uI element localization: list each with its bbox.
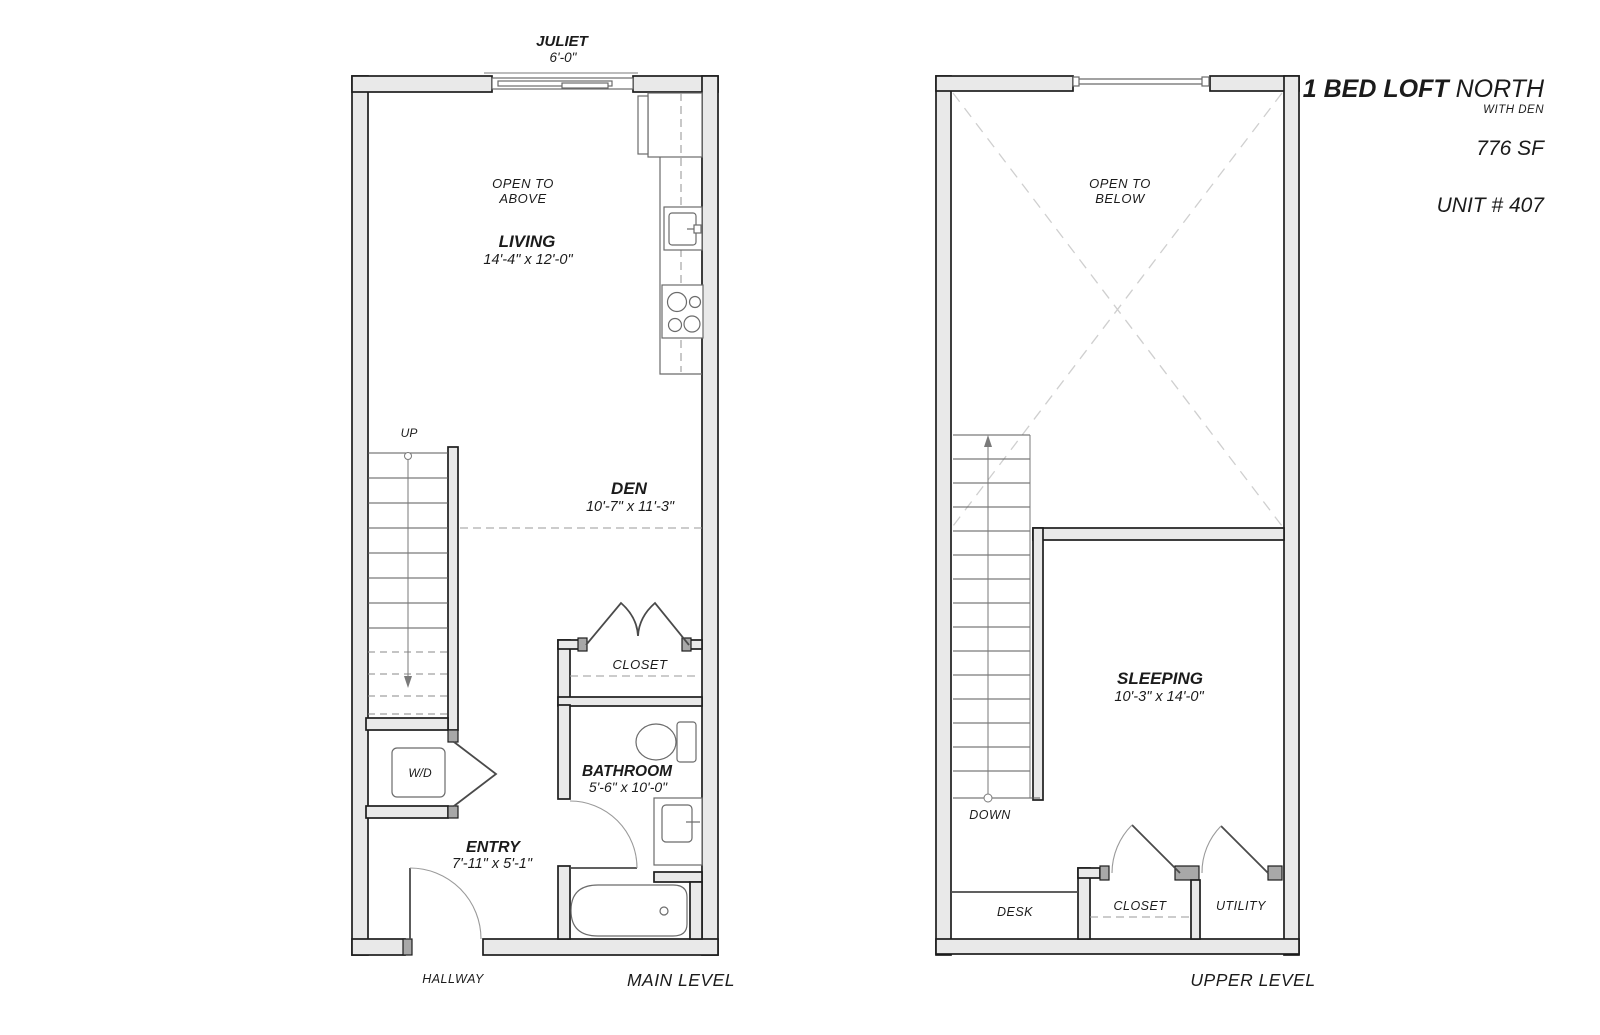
- utility-label: UTILITY: [1216, 899, 1267, 913]
- closet-wall: [1191, 880, 1200, 939]
- bathroom: [570, 722, 702, 936]
- wd-double-doors: [454, 742, 496, 806]
- bathroom-wall: [558, 866, 570, 939]
- kitchen-sink: [664, 207, 702, 250]
- door-jamb-cap: [448, 730, 458, 742]
- down-label: DOWN: [969, 808, 1011, 822]
- closet-wall: [690, 640, 702, 649]
- wall-segment: [936, 939, 1299, 954]
- sleeping-dim: 10'-3" x 14'-0": [1114, 689, 1204, 705]
- refrigerator-door: [638, 96, 648, 154]
- open-to-above-label2: ABOVE: [498, 191, 546, 206]
- bathroom-wall: [558, 705, 570, 799]
- upper-walls: [936, 76, 1299, 955]
- plan-area: 776 SF: [1476, 137, 1545, 160]
- open-to-below-brace: [953, 93, 1282, 526]
- stair-start-node: [405, 453, 412, 460]
- juliet-label: JULIET: [536, 33, 590, 50]
- floor-plan-drawing: JULIET 6'-0" OPEN TO ABOVE LIVING 14'-4"…: [0, 0, 1600, 1035]
- main-level-caption: MAIN LEVEL: [627, 970, 735, 990]
- wall-segment: [1284, 76, 1299, 955]
- door-jamb-cap: [1100, 866, 1109, 880]
- plan-unit-number: UNIT # 407: [1437, 194, 1546, 217]
- closet-label: CLOSET: [612, 657, 668, 672]
- wall-segment: [483, 939, 718, 955]
- stair-wall: [448, 447, 458, 730]
- sleeping-wall: [1033, 528, 1284, 540]
- upper-window: [1073, 77, 1209, 86]
- juliet-dim: 6'-0": [550, 50, 578, 65]
- stair-direction-arrow: [984, 435, 992, 447]
- wd-label: W/D: [408, 766, 432, 780]
- juliet-door: [484, 73, 638, 89]
- bathtub: [571, 885, 687, 936]
- main-level-plan: JULIET 6'-0" OPEN TO ABOVE LIVING 14'-4"…: [352, 33, 735, 990]
- utility-door: [1202, 826, 1268, 873]
- living-label: LIVING: [499, 232, 556, 251]
- upper-level-caption: UPPER LEVEL: [1190, 970, 1315, 990]
- entry-door: [410, 868, 481, 939]
- closet-wall: [558, 697, 702, 706]
- bathroom-sink: [654, 798, 702, 865]
- stair-direction-arrow: [404, 676, 412, 688]
- bathroom-wall: [654, 872, 702, 882]
- sleeping-label: SLEEPING: [1117, 669, 1203, 688]
- desk-label: DESK: [997, 905, 1033, 919]
- upper-stairs: [953, 435, 1040, 802]
- wall-segment: [366, 806, 448, 818]
- title-block: 1 BED LOFT NORTH WITH DEN 776 SF UNIT # …: [1303, 75, 1546, 217]
- bathroom-wall: [690, 882, 702, 939]
- toilet: [636, 722, 696, 762]
- open-to-below-label2: BELOW: [1095, 191, 1146, 206]
- closet-bifold-doors: [586, 603, 689, 645]
- upper-closet-label: CLOSET: [1113, 899, 1167, 913]
- main-stairs: [368, 453, 448, 715]
- wall-segment: [936, 76, 1073, 91]
- wall-segment: [366, 718, 448, 730]
- living-dim: 14'-4" x 12'-0": [483, 252, 573, 268]
- wall-segment: [936, 76, 951, 955]
- door-jamb-cap: [682, 638, 691, 651]
- stove: [662, 285, 703, 338]
- hallway-label: HALLWAY: [422, 972, 485, 986]
- wall-segment: [352, 76, 492, 92]
- kitchen: [638, 93, 703, 374]
- up-label: UP: [401, 426, 418, 440]
- bathroom-label: BATHROOM: [582, 763, 673, 780]
- wall-segment: [702, 76, 718, 955]
- den-dim: 10'-7" x 11'-3": [586, 499, 675, 515]
- sleeping-wall: [1033, 528, 1043, 800]
- closet-wall: [1078, 868, 1100, 878]
- open-to-above-label: OPEN TO: [492, 176, 554, 191]
- entry-label: ENTRY: [466, 839, 521, 856]
- wall-segment: [352, 76, 368, 955]
- door-jamb-cap: [1268, 866, 1282, 880]
- door-jamb-cap: [1175, 866, 1199, 880]
- door-jamb-cap: [403, 939, 412, 955]
- plan-subtitle: WITH DEN: [1483, 104, 1544, 116]
- entry-dim: 7'-11" x 5'-1": [452, 856, 533, 872]
- door-jamb-cap: [448, 806, 458, 818]
- plan-title: 1 BED LOFT NORTH: [1303, 75, 1545, 103]
- bathroom-dim: 5'-6" x 10'-0": [589, 779, 668, 795]
- floor-plan-sheet: JULIET 6'-0" OPEN TO ABOVE LIVING 14'-4"…: [0, 0, 1600, 1035]
- refrigerator: [648, 93, 702, 157]
- den-label: DEN: [611, 479, 648, 498]
- stair-start-node: [984, 794, 992, 802]
- open-to-below-label: OPEN TO: [1089, 176, 1151, 191]
- plan-title-bold: 1 BED LOFT: [1303, 75, 1452, 103]
- plan-title-regular: NORTH: [1449, 75, 1545, 103]
- wall-segment: [352, 939, 405, 955]
- upper-level-plan: OPEN TO BELOW SLEEPING 10'-3" x 14'-0" D…: [936, 76, 1316, 990]
